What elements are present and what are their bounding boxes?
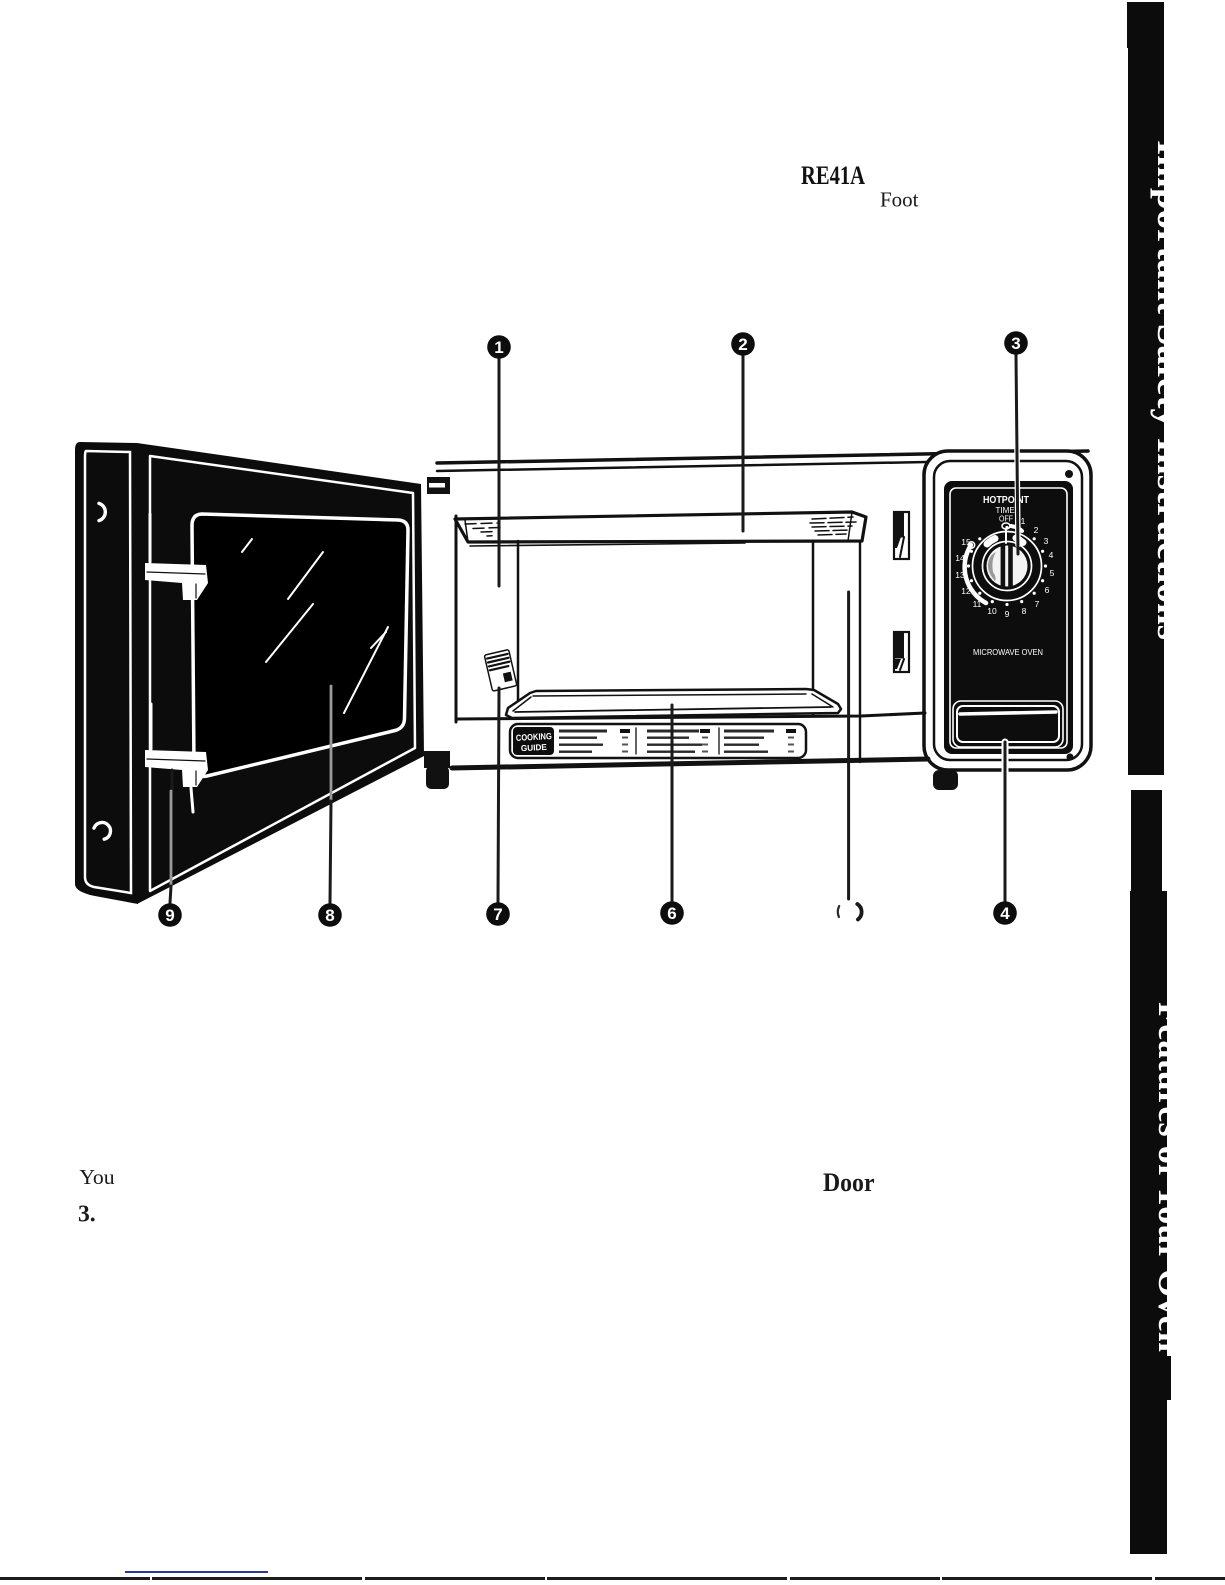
svg-text:HOTPOINT: HOTPOINT [983, 494, 1029, 506]
svg-text:GUIDE: GUIDE [521, 742, 548, 753]
svg-text:9: 9 [165, 906, 174, 925]
svg-text:Door: Door [823, 1168, 875, 1197]
svg-text:10: 10 [987, 606, 997, 616]
svg-text:4: 4 [1000, 904, 1010, 923]
svg-text:12: 12 [961, 586, 971, 596]
svg-text:5: 5 [1050, 568, 1055, 578]
svg-text:3: 3 [1044, 536, 1049, 546]
svg-text:6: 6 [1045, 585, 1050, 595]
svg-text:6: 6 [667, 904, 676, 923]
svg-text:MICROWAVE OVEN: MICROWAVE OVEN [973, 647, 1043, 657]
svg-text:15: 15 [961, 537, 971, 547]
svg-text:9: 9 [1005, 609, 1010, 619]
svg-text:Important Safety Instructions: Important Safety Instructions [1150, 140, 1190, 640]
svg-text:4: 4 [1049, 550, 1054, 560]
svg-text:RE41A: RE41A [801, 161, 865, 190]
svg-text:1: 1 [1021, 516, 1026, 526]
svg-text:8: 8 [1022, 606, 1027, 616]
svg-text:1: 1 [494, 338, 503, 357]
svg-text:7: 7 [1035, 599, 1040, 609]
svg-text:13: 13 [955, 570, 965, 580]
svg-text:2: 2 [1034, 525, 1039, 535]
svg-text:14: 14 [955, 553, 965, 563]
svg-text:2: 2 [738, 335, 747, 354]
svg-text:Foot: Foot [880, 188, 919, 212]
svg-text:8: 8 [325, 906, 334, 925]
svg-text:COOKING: COOKING [516, 731, 552, 743]
svg-text:3.: 3. [78, 1202, 96, 1228]
svg-text:You: You [79, 1165, 115, 1189]
svg-text:3: 3 [1011, 334, 1020, 353]
svg-text:Features of Your Oven: Features of Your Oven [1151, 1002, 1191, 1352]
svg-text:7: 7 [493, 905, 502, 924]
svg-text:OFF: OFF [999, 515, 1013, 524]
svg-text:11: 11 [973, 599, 982, 609]
